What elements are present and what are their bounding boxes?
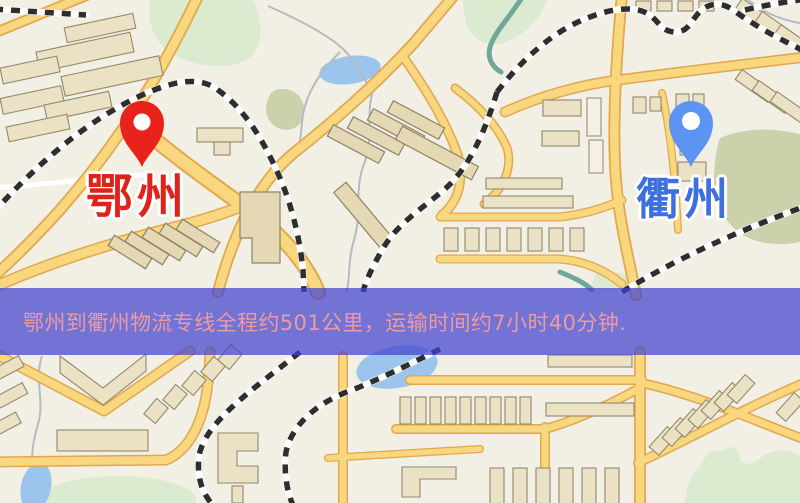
route-info-banner: 鄂州到衢州物流专线全程约501公里，运输时间约7小时40分钟. xyxy=(0,288,800,355)
destination-city-label: 衢州 xyxy=(636,178,732,222)
route-info-text: 鄂州到衢州物流专线全程约501公里，运输时间约7小时40分钟. xyxy=(23,307,626,337)
map-canvas xyxy=(0,0,800,503)
origin-city-label: 鄂州 xyxy=(86,174,188,221)
map-screenshot: 鄂州 衢州 鄂州到衢州物流专线全程约501公里，运输时间约7小时40分钟. xyxy=(0,0,800,503)
origin-pin-icon xyxy=(120,101,164,167)
